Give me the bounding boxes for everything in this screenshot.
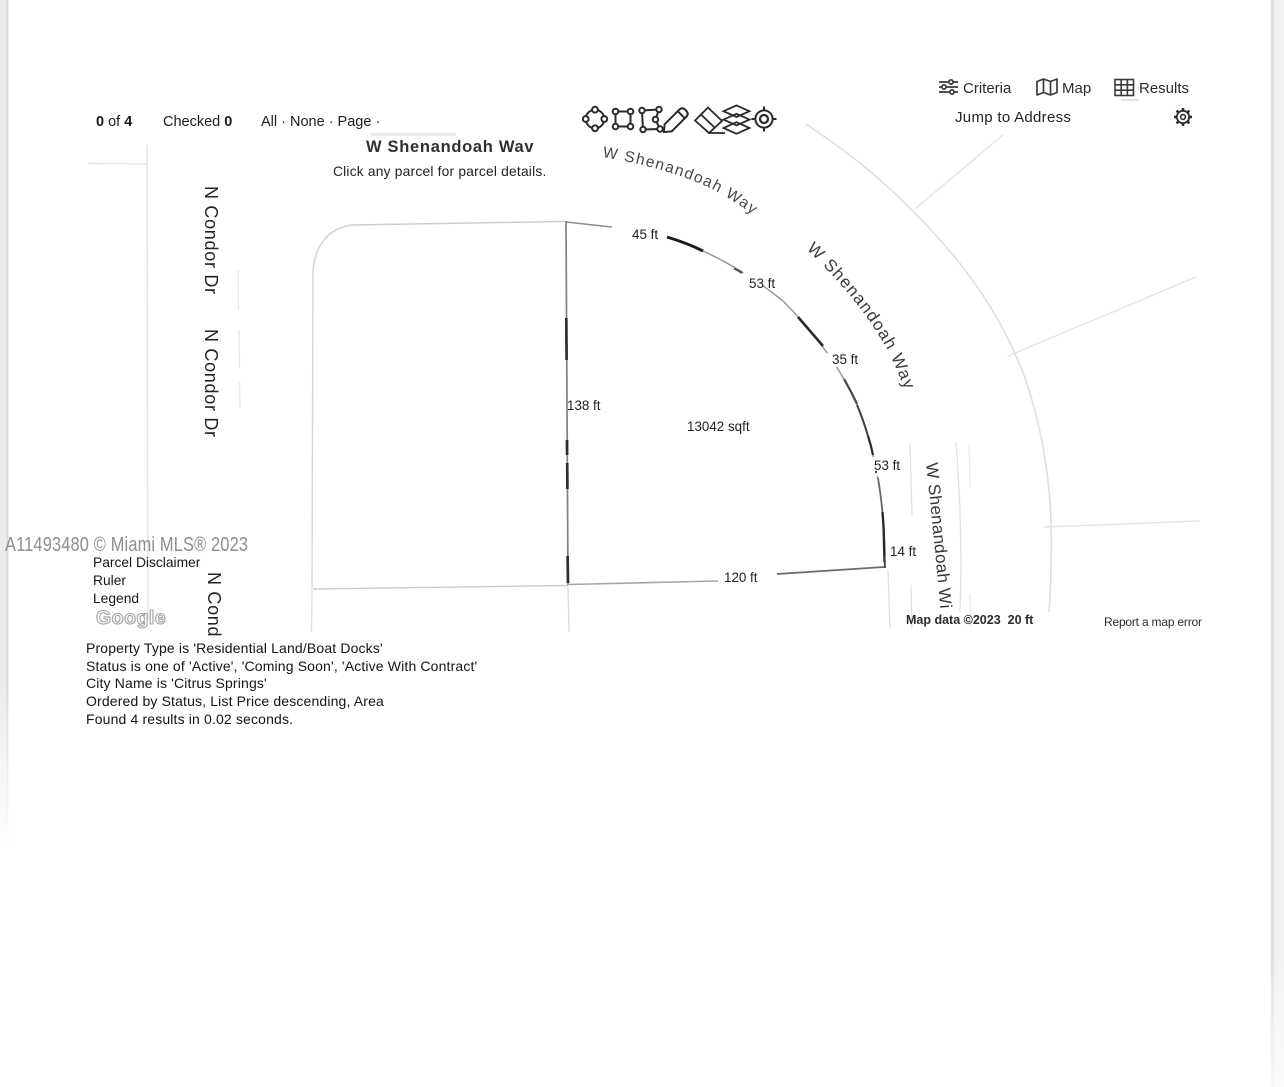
- svg-text:A11493480 © Miami MLS® 2023: A11493480 © Miami MLS® 2023: [5, 532, 248, 555]
- svg-text:138 ft: 138 ft: [567, 398, 601, 413]
- svg-text:W Shenandoah Wav: W Shenandoah Wav: [366, 138, 534, 156]
- svg-text:53 ft: 53 ft: [874, 458, 900, 473]
- svg-text:N Condor Dr: N Condor Dr: [201, 329, 221, 438]
- svg-text:120 ft: 120 ft: [724, 570, 758, 585]
- svg-text:Click any parcel for parcel de: Click any parcel for parcel details.: [333, 164, 546, 179]
- svg-text:35 ft: 35 ft: [832, 352, 858, 367]
- svg-text:W Shenandoah Wi: W Shenandoah Wi: [922, 462, 955, 610]
- svg-text:14 ft: 14 ft: [890, 544, 916, 559]
- svg-text:45 ft: 45 ft: [632, 227, 658, 242]
- svg-text:53 ft: 53 ft: [749, 276, 775, 291]
- svg-text:13042 sqft: 13042 sqft: [687, 419, 750, 434]
- svg-text:N Cond: N Cond: [204, 572, 224, 637]
- svg-text:N Condor Dr: N Condor Dr: [201, 186, 221, 295]
- svg-text:W Shenandoah Way: W Shenandoah Way: [602, 144, 762, 218]
- svg-text:W Shenandoah Way: W Shenandoah Way: [803, 238, 919, 392]
